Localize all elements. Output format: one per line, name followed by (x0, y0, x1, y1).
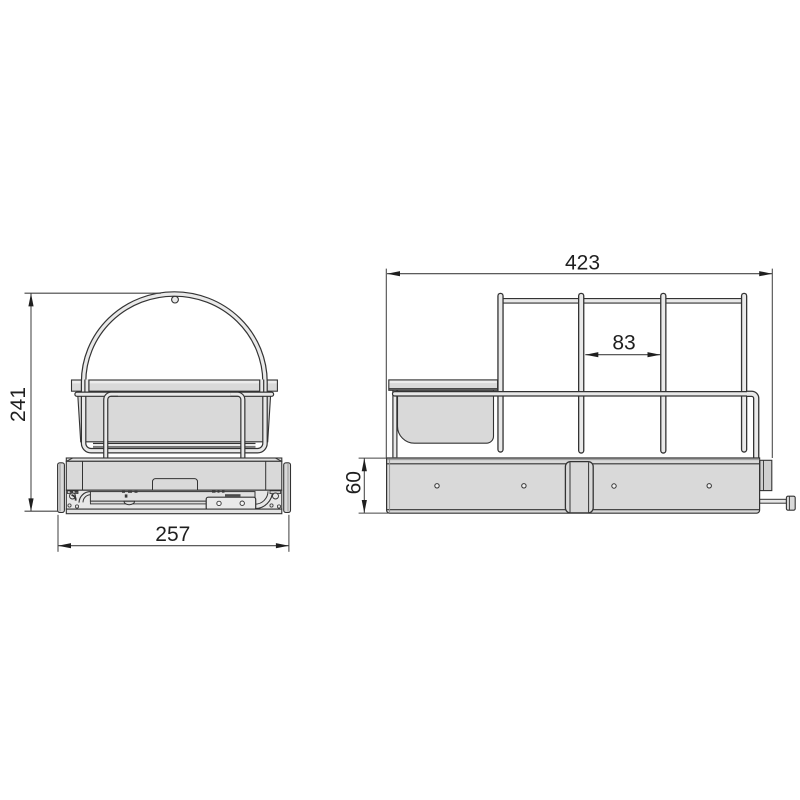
svg-text:423: 423 (565, 252, 600, 275)
svg-text:83: 83 (612, 331, 635, 354)
svg-text:241: 241 (7, 387, 30, 422)
svg-text:60: 60 (343, 471, 366, 494)
svg-text:257: 257 (155, 523, 190, 546)
